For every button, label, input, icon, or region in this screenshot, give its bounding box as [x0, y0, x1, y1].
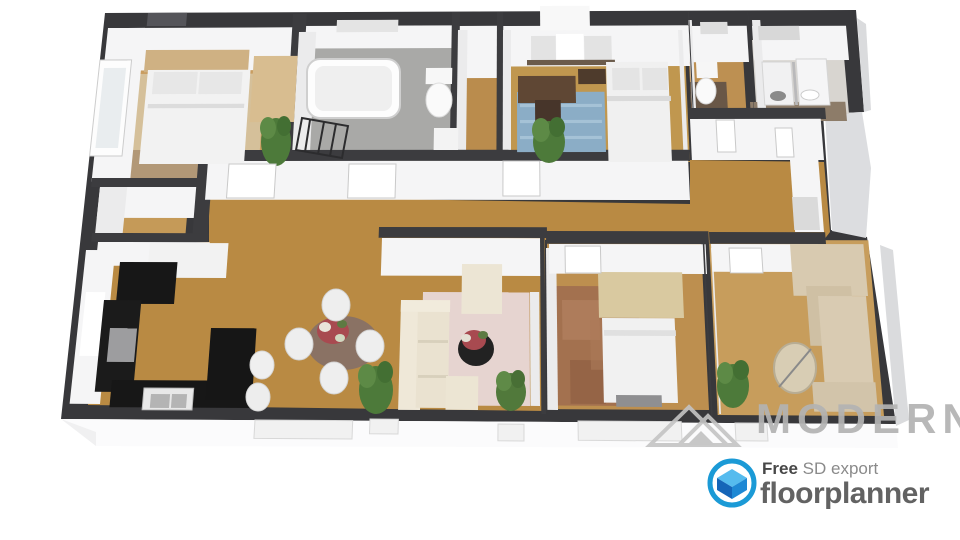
svg-text:floorplanner: floorplanner [760, 477, 930, 510]
svg-text:MODERN: MODERN [756, 395, 960, 442]
svg-text:Free SD export: Free SD export [762, 459, 879, 478]
